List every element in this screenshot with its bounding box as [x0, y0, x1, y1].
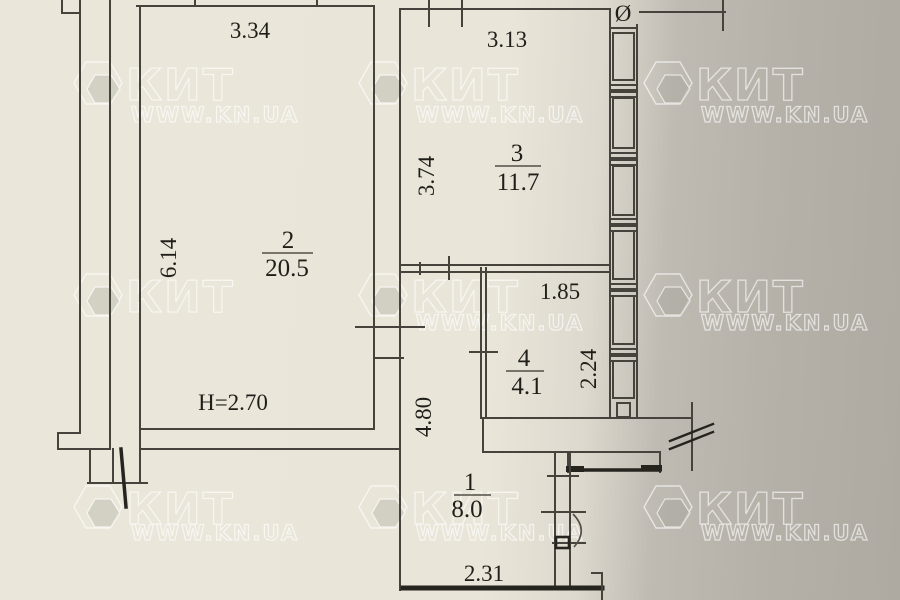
site-watermark: WWW.KN.UA — [416, 103, 584, 127]
room1-height-dim: 4.80 — [411, 397, 436, 437]
room4-height-dim: 2.24 — [576, 348, 601, 389]
room2-width-dim: 3.34 — [230, 18, 271, 43]
site-watermark: WWW.KN.UA — [131, 103, 299, 127]
site-watermark: WWW.KN.UA — [701, 311, 869, 335]
window-glazing-strip — [610, 9, 637, 418]
right-wall-break — [670, 403, 713, 470]
site-watermark: WWW.KN.UA — [416, 311, 584, 335]
site-watermark: WWW.KN.UA — [131, 521, 299, 545]
ceiling-height-label: H=2.70 — [198, 390, 268, 415]
top-right-wall — [640, 0, 725, 30]
room4-number: 4 — [518, 345, 531, 372]
room2-height-dim: 6.14 — [156, 237, 181, 278]
room1-width-dim: 2.31 — [464, 561, 504, 586]
room2-area: 20.5 — [265, 255, 309, 282]
wall-edge-heavy — [121, 449, 126, 507]
room3-width-dim: 3.13 — [487, 27, 527, 52]
svg-text:КИТ: КИТ — [126, 272, 235, 323]
site-watermark: WWW.KN.UA — [701, 521, 869, 545]
kit-watermark: КИТ — [74, 272, 235, 323]
floorplan-drawing: КИТ КИТ КИТ WWW.KN.UA WWW.KN.UA WWW.KN.U… — [0, 0, 900, 600]
floorplan-photo: КИТ КИТ КИТ WWW.KN.UA WWW.KN.UA WWW.KN.U… — [0, 0, 900, 600]
room4-area: 4.1 — [511, 373, 542, 400]
diameter-mark: Ø — [615, 1, 632, 26]
room1-area: 8.0 — [451, 496, 482, 523]
room2-number: 2 — [282, 227, 295, 254]
site-watermark: WWW.KN.UA — [416, 521, 584, 545]
room4-width-dim: 1.85 — [540, 279, 580, 304]
doorway-opening — [568, 452, 660, 472]
room3-height-dim: 3.74 — [414, 155, 439, 196]
room1-number: 1 — [464, 469, 477, 496]
room3-number: 3 — [511, 140, 524, 167]
room3-area: 11.7 — [497, 169, 540, 196]
site-watermark: WWW.KN.UA — [701, 103, 869, 127]
